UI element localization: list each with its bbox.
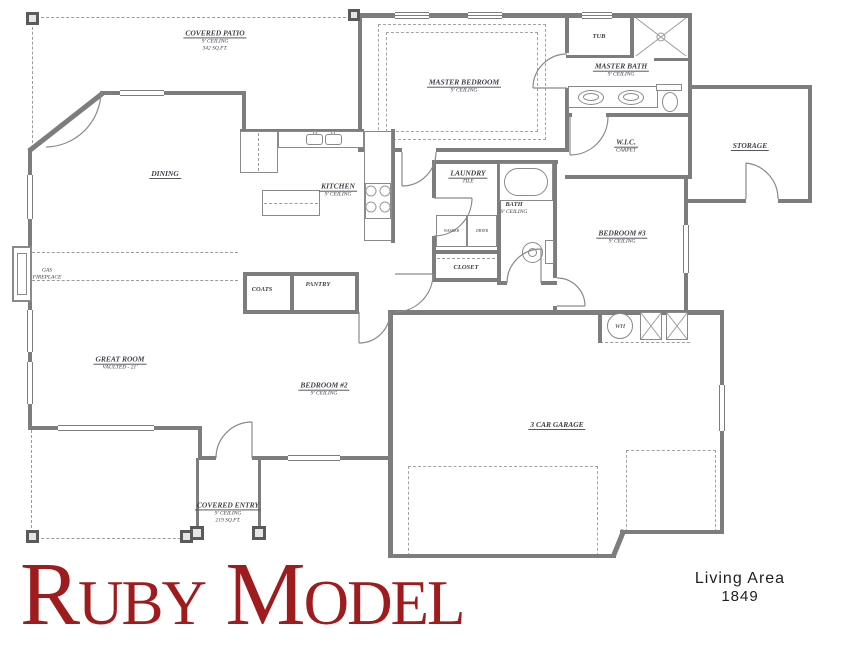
shower-drain bbox=[657, 33, 665, 41]
diagonal-wall bbox=[613, 530, 624, 557]
room-label-kitchen: KITCHEN 9' CEILING bbox=[319, 182, 357, 199]
patio-outline bbox=[32, 17, 33, 148]
window bbox=[120, 90, 164, 96]
wall bbox=[243, 272, 247, 314]
wall bbox=[355, 272, 359, 314]
dryer-label: DRYER bbox=[469, 228, 495, 233]
closet-rod bbox=[437, 258, 495, 259]
room-label-bath: BATH 9' CEILING bbox=[501, 201, 528, 215]
porch-post bbox=[26, 530, 39, 543]
window bbox=[582, 12, 612, 19]
wall bbox=[688, 85, 812, 89]
floor-plan: WASHER DRYER WH bbox=[0, 0, 850, 650]
range bbox=[365, 183, 391, 219]
vanity-sink-inner bbox=[623, 93, 639, 101]
room-label-bedroom2: BEDROOM #2 9' CEILING bbox=[298, 381, 349, 398]
living-area-value: 1849 bbox=[650, 588, 830, 605]
wall bbox=[198, 426, 202, 460]
wall bbox=[388, 310, 393, 460]
door-arc bbox=[570, 117, 608, 155]
window bbox=[683, 225, 689, 273]
porch-post bbox=[190, 526, 204, 540]
room-label-closet: CLOSET bbox=[454, 264, 479, 272]
wall bbox=[432, 160, 436, 198]
room-label-dining: DINING bbox=[149, 169, 181, 179]
ceiling-break-line bbox=[32, 280, 238, 281]
door-arc bbox=[402, 152, 436, 186]
refrigerator-divider bbox=[258, 133, 259, 171]
wall bbox=[630, 13, 634, 58]
room-label-laundry: LAUNDRY TILE bbox=[448, 169, 487, 186]
toilet-bowl bbox=[662, 92, 678, 112]
wall bbox=[620, 530, 724, 534]
room-label-covered-entry: COVERED ENTRY 9' CEILING 219 SQ.FT. bbox=[195, 500, 261, 523]
room-label-pantry: PANTRY bbox=[306, 281, 331, 289]
room-label-wic: W.I.C. CARPET bbox=[614, 138, 638, 155]
fireplace-inner bbox=[17, 253, 27, 295]
utility-box bbox=[666, 312, 688, 340]
porch-outline bbox=[31, 430, 32, 538]
diagonal-wall bbox=[29, 93, 103, 151]
utility-box bbox=[640, 312, 662, 340]
wall bbox=[654, 58, 692, 61]
wall bbox=[436, 148, 568, 152]
wall bbox=[388, 460, 393, 558]
wall bbox=[688, 89, 692, 179]
refrigerator bbox=[240, 131, 278, 173]
wall bbox=[688, 13, 692, 89]
garage-door-clearance bbox=[626, 450, 716, 532]
wall bbox=[808, 85, 812, 203]
kitchen-sink bbox=[325, 134, 342, 145]
porch-post bbox=[26, 12, 39, 25]
window bbox=[58, 425, 154, 431]
ceiling-break-line bbox=[32, 252, 238, 253]
window bbox=[468, 12, 502, 19]
living-area-block: Living Area 1849 bbox=[650, 570, 830, 605]
wall bbox=[432, 250, 500, 254]
door-arc bbox=[557, 278, 585, 306]
window bbox=[719, 385, 725, 431]
utility-closet-front bbox=[600, 342, 690, 343]
window bbox=[27, 362, 33, 404]
wall bbox=[606, 113, 692, 117]
wall bbox=[778, 199, 812, 203]
kitchen-sink bbox=[306, 134, 323, 145]
label-gas-fireplace: GAS FIREPLACE bbox=[33, 267, 62, 280]
garage-door-clearance bbox=[408, 466, 598, 556]
wall bbox=[432, 278, 500, 282]
room-label-storage: STORAGE bbox=[731, 141, 769, 151]
porch-post bbox=[252, 526, 266, 540]
toilet-tank bbox=[656, 84, 682, 91]
door-arc bbox=[746, 163, 778, 199]
island-divider bbox=[264, 203, 318, 204]
toilet-bowl-inner bbox=[528, 248, 537, 257]
room-label-master-bedroom: MASTER BEDROOM 9' CEILING bbox=[427, 78, 501, 95]
wall bbox=[358, 13, 362, 133]
wall bbox=[566, 55, 632, 58]
door-arc bbox=[359, 312, 390, 343]
room-label-master-bath: MASTER BATH 9' CEILING bbox=[593, 62, 649, 79]
room-label-covered-patio: COVERED PATIO 9' CEILING 342 SQ.FT. bbox=[183, 28, 246, 51]
plan-title: Ruby Model bbox=[20, 552, 464, 638]
door-arc bbox=[395, 274, 433, 312]
wall bbox=[565, 13, 569, 53]
room-label-garage: 3 CAR GARAGE bbox=[528, 420, 585, 430]
wall bbox=[541, 281, 557, 285]
window bbox=[288, 455, 340, 461]
room-label-bedroom3: BEDROOM #3 9' CEILING bbox=[596, 229, 647, 246]
shower-x bbox=[636, 18, 686, 56]
wall bbox=[243, 310, 357, 314]
shower-x bbox=[636, 18, 686, 56]
wall bbox=[598, 310, 602, 343]
porch-outline bbox=[31, 538, 191, 539]
room-label-tub: TUB bbox=[593, 33, 606, 41]
room-label-coats: COATS bbox=[252, 286, 273, 294]
bathtub-basin bbox=[504, 168, 548, 196]
room-label-great-room: GREAT ROOM VAULTED - 21' bbox=[94, 355, 147, 372]
window bbox=[27, 175, 33, 219]
water-heater-label: WH bbox=[615, 323, 625, 330]
door-arc bbox=[46, 92, 101, 147]
window bbox=[395, 12, 429, 19]
vanity-sink-inner bbox=[583, 93, 599, 101]
porch-post bbox=[348, 9, 360, 21]
water-heater: WH bbox=[607, 313, 633, 339]
living-area-label: Living Area bbox=[650, 570, 830, 588]
wall bbox=[688, 199, 746, 203]
wall bbox=[243, 272, 359, 276]
door-arc bbox=[216, 422, 252, 458]
wall bbox=[290, 272, 294, 314]
toilet-tank bbox=[545, 240, 554, 264]
window bbox=[27, 310, 33, 352]
washer-label: WASHER bbox=[438, 228, 465, 233]
wall bbox=[565, 175, 692, 179]
wall bbox=[497, 255, 501, 282]
wall bbox=[242, 91, 246, 133]
wall bbox=[553, 306, 557, 314]
patio-outline bbox=[36, 17, 356, 18]
